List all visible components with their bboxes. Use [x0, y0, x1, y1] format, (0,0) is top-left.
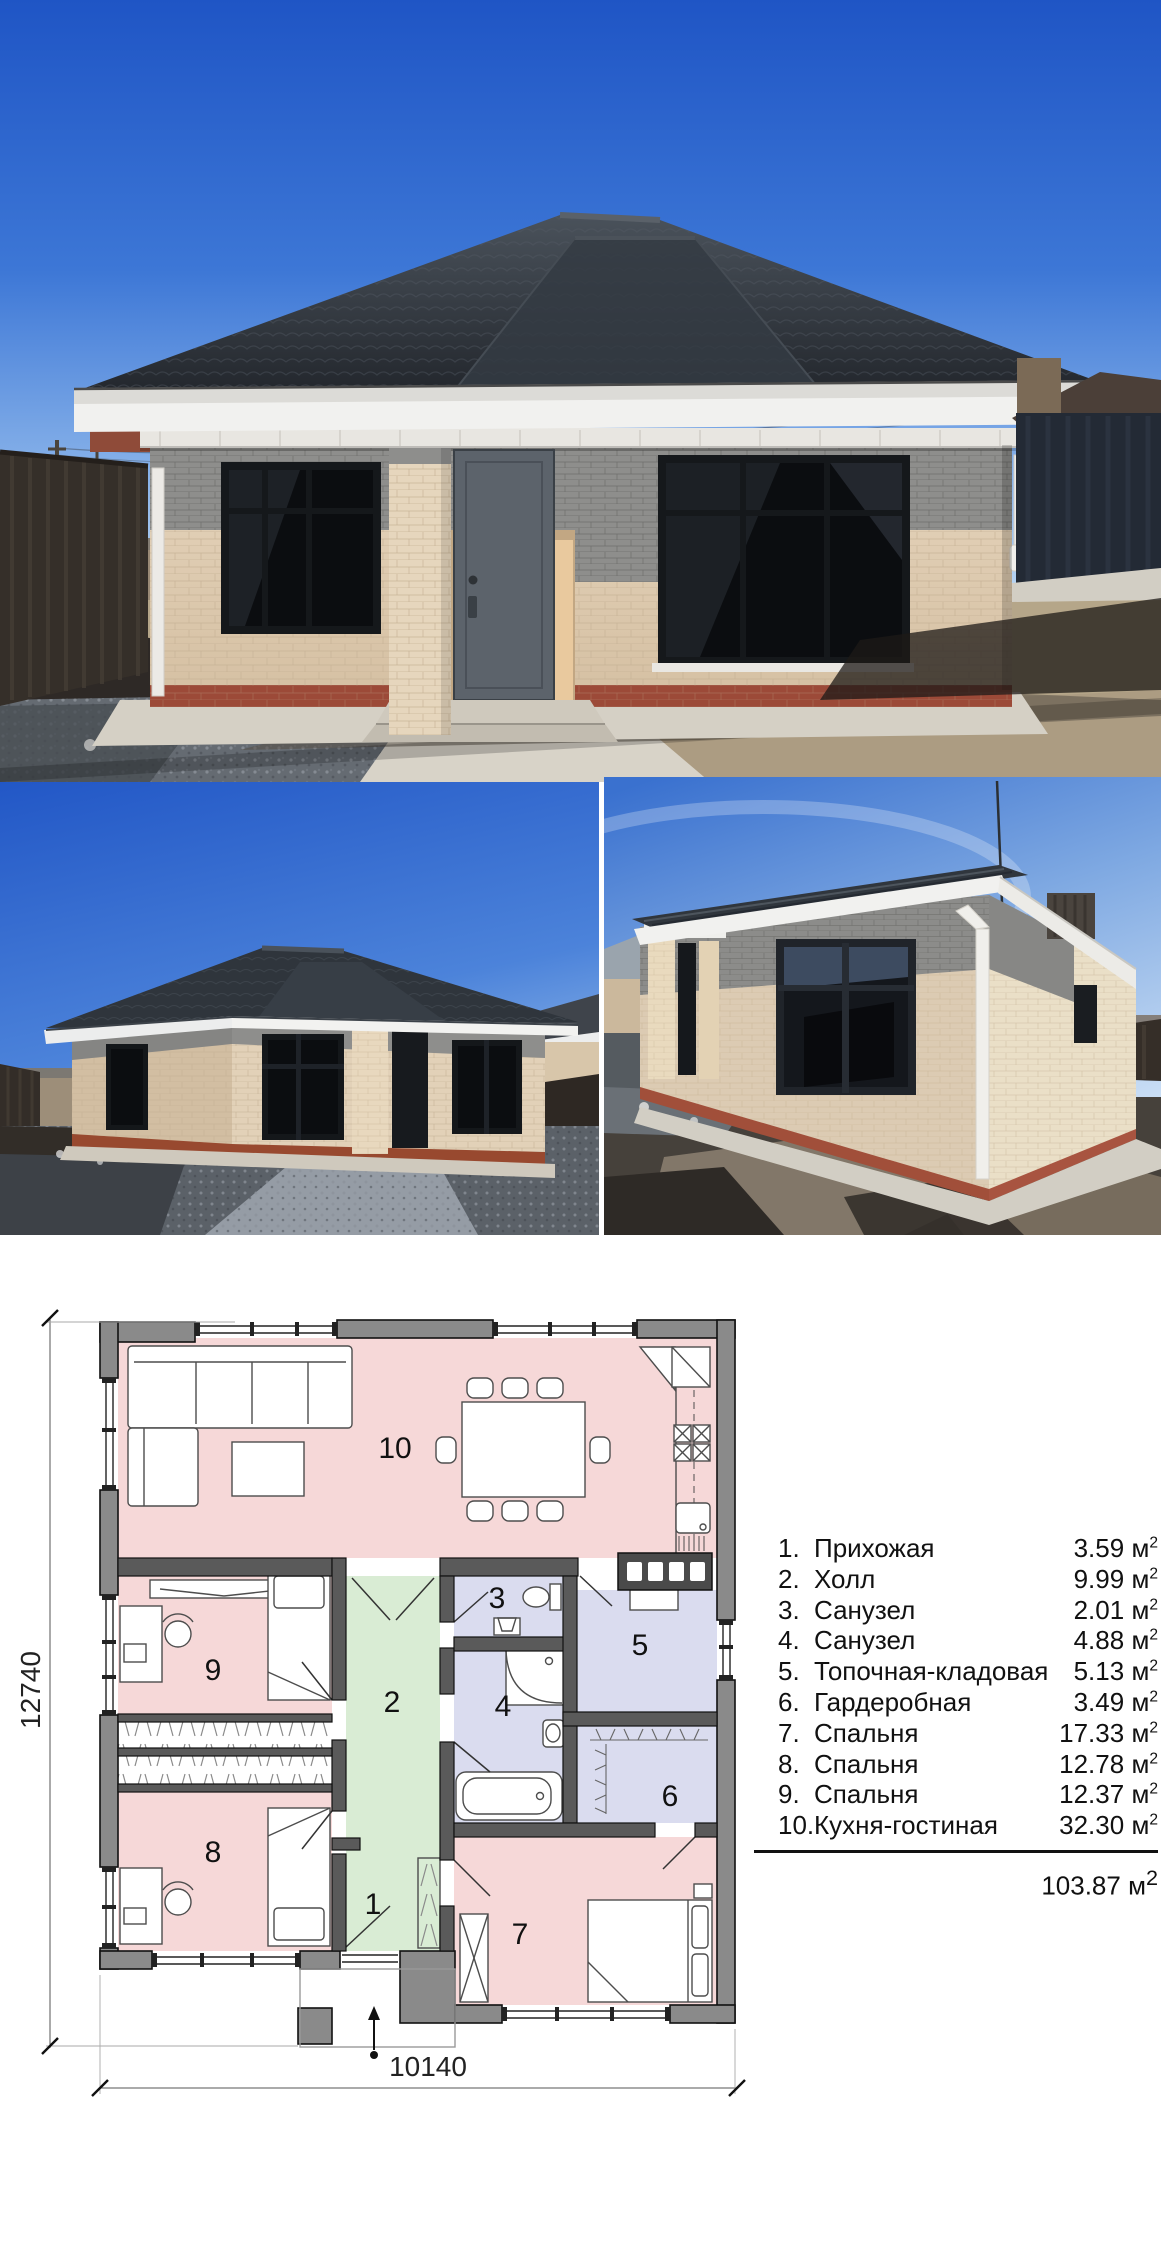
- dimension-width: 10140: [389, 2051, 467, 2082]
- legend-area: 5.13 м2: [1074, 1656, 1158, 1687]
- legend-number: 9.: [778, 1779, 814, 1810]
- front-facade-photo: [0, 0, 1161, 782]
- legend-number: 2.: [778, 1564, 814, 1595]
- terrace-columns: [644, 923, 726, 1079]
- legend-number: 10.: [778, 1810, 814, 1841]
- room-legend: 1.Прихожая3.59 м2 2.Холл9.99 м2 3.Санузе…: [778, 1533, 1158, 1902]
- legend-room-name: Санузел: [814, 1595, 1074, 1626]
- legend-number: 8.: [778, 1749, 814, 1780]
- left-window: [221, 462, 381, 634]
- room-label-10: 10: [378, 1432, 411, 1465]
- legend-number: 4.: [778, 1625, 814, 1656]
- front-facade-art: [0, 0, 1161, 782]
- legend-row: 6.Гардеробная3.49 м2: [778, 1687, 1158, 1718]
- legend-room-name: Гардеробная: [814, 1687, 1074, 1718]
- legend-area: 3.59 м2: [1074, 1533, 1158, 1564]
- legend-room-name: Топочная-кладовая: [814, 1656, 1074, 1687]
- legend-area: 9.99 м2: [1074, 1564, 1158, 1595]
- side-angle-art: [0, 782, 599, 1235]
- legend-row: 10.Кухня-гостиная32.30 м2: [778, 1810, 1158, 1841]
- dimension-height: 12740: [15, 1651, 46, 1729]
- room-label-2: 2: [384, 1686, 401, 1719]
- legend-area: 32.30 м2: [1059, 1810, 1158, 1841]
- legend-number: 3.: [778, 1595, 814, 1626]
- side-angle-photo: [0, 782, 599, 1235]
- legend-row: 8.Спальня12.78 м2: [778, 1749, 1158, 1780]
- real-estate-collage: 10 9 2 3 4 5 6 8 1 7 12740: [0, 0, 1161, 2260]
- room-label-9: 9: [205, 1654, 222, 1687]
- legend-room-name: Спальня: [814, 1718, 1059, 1749]
- legend-area: 12.78 м2: [1059, 1749, 1158, 1780]
- rear-angle-art: [604, 777, 1161, 1235]
- room-label-4: 4: [495, 1690, 512, 1723]
- legend-number: 1.: [778, 1533, 814, 1564]
- legend-row: 7.Спальня17.33 м2: [778, 1718, 1158, 1749]
- legend-number: 5.: [778, 1656, 814, 1687]
- rear-angle-photo: [604, 777, 1161, 1235]
- legend-room-name: Спальня: [814, 1749, 1059, 1780]
- legend-row: 5.Топочная-кладовая5.13 м2: [778, 1656, 1158, 1687]
- legend-row: 2.Холл9.99 м2: [778, 1564, 1158, 1595]
- legend-number: 6.: [778, 1687, 814, 1718]
- legend-area: 17.33 м2: [1059, 1718, 1158, 1749]
- legend-number: 7.: [778, 1718, 814, 1749]
- room-label-6: 6: [662, 1780, 679, 1813]
- bedroom7-bed: [588, 1884, 712, 2002]
- room-label-3: 3: [489, 1582, 506, 1615]
- legend-row: 3.Санузел2.01 м2: [778, 1595, 1158, 1626]
- legend-room-name: Холл: [814, 1564, 1074, 1595]
- legend-row: 1.Прихожая3.59 м2: [778, 1533, 1158, 1564]
- room-label-8: 8: [205, 1836, 222, 1869]
- small-window: [1074, 985, 1097, 1043]
- room-label-5: 5: [632, 1629, 649, 1662]
- legend-room-name: Санузел: [814, 1625, 1074, 1656]
- legend-row: 4.Санузел4.88 м2: [778, 1625, 1158, 1656]
- big-window: [776, 939, 916, 1095]
- legend-row: 9.Спальня12.37 м2: [778, 1779, 1158, 1810]
- legend-total: 103.87 м2: [778, 1865, 1158, 1902]
- legend-area: 2.01 м2: [1074, 1595, 1158, 1626]
- room-label-7: 7: [512, 1918, 529, 1951]
- legend-room-name: Спальня: [814, 1779, 1059, 1810]
- legend-room-name: Прихожая: [814, 1533, 1074, 1564]
- porch-column: [389, 448, 451, 735]
- room1-closet: [418, 1858, 440, 1948]
- legend-area: 3.49 м2: [1074, 1687, 1158, 1718]
- legend-area: 12.37 м2: [1059, 1779, 1158, 1810]
- legend-room-name: Кухня-гостиная: [814, 1810, 1059, 1841]
- room-label-1: 1: [365, 1888, 382, 1921]
- legend-divider: [754, 1850, 1158, 1853]
- vent-grille: [618, 1553, 712, 1590]
- legend-area: 4.88 м2: [1074, 1625, 1158, 1656]
